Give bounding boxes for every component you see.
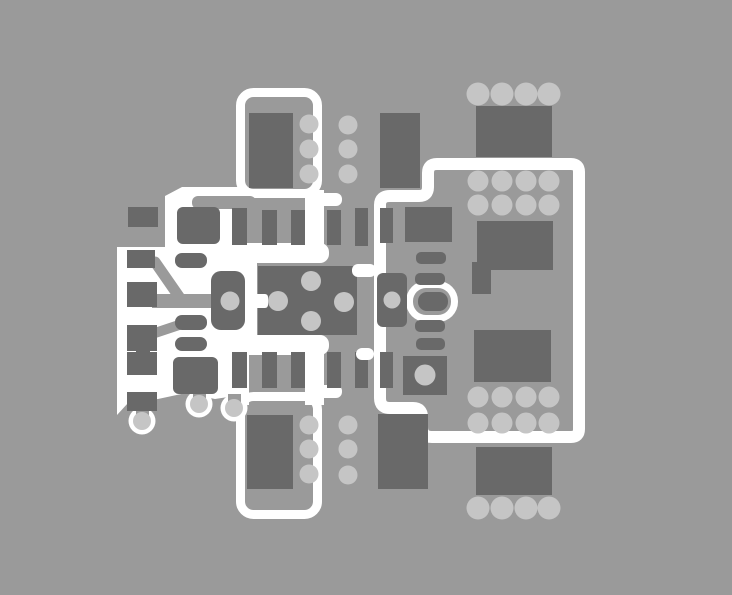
obround-pad-bar — [418, 292, 448, 311]
module-pad-topleft — [405, 207, 452, 242]
line-left-stub-lower — [356, 348, 374, 360]
via — [538, 497, 561, 520]
pad-block-bottom — [476, 447, 552, 495]
via — [492, 413, 513, 434]
via — [300, 140, 319, 159]
via — [300, 165, 319, 184]
teardrop-hole — [190, 395, 208, 413]
ic-pin — [291, 352, 305, 388]
via — [516, 195, 537, 216]
pin-bar — [415, 273, 445, 285]
thermal-via — [334, 292, 354, 312]
via — [339, 140, 358, 159]
via — [468, 195, 489, 216]
module-left-via — [384, 292, 401, 309]
ic-pin — [291, 210, 305, 245]
ic-pin — [380, 352, 393, 388]
via — [467, 83, 490, 106]
inner-pad — [175, 315, 207, 330]
via — [539, 195, 560, 216]
via — [339, 440, 358, 459]
pad-top-right — [380, 113, 420, 188]
line-left-stub-upper — [352, 264, 376, 277]
via — [492, 171, 513, 192]
ic-pin — [232, 208, 247, 245]
via — [468, 413, 489, 434]
via — [492, 387, 513, 408]
via — [539, 387, 560, 408]
thermal-via — [268, 291, 288, 311]
inner-pad-large — [177, 207, 220, 244]
inner-pad — [175, 337, 207, 351]
connector-pad-via — [221, 292, 240, 311]
thermal-via — [301, 271, 321, 291]
teardrop-hole — [133, 412, 151, 430]
via — [491, 83, 514, 106]
ic-pin — [232, 352, 247, 388]
via — [539, 413, 560, 434]
pad-below-module-left — [378, 414, 428, 489]
module-pad-lower — [474, 330, 551, 382]
outline-nub-top-right — [318, 193, 342, 206]
edge-pad — [127, 250, 155, 268]
board-background — [0, 0, 732, 595]
pad-block-top — [476, 106, 552, 157]
thermal-via — [301, 311, 321, 331]
pad-top-left — [128, 207, 158, 227]
ic-body-top-ring — [249, 113, 293, 188]
via — [300, 440, 319, 459]
ic-pin — [380, 208, 393, 243]
module-pad-upper — [477, 221, 553, 270]
via — [300, 115, 319, 134]
via — [339, 116, 358, 135]
ic-pin — [327, 352, 341, 388]
ic-pin — [262, 352, 277, 388]
via — [491, 497, 514, 520]
via — [539, 171, 560, 192]
via — [515, 83, 538, 106]
via — [339, 165, 358, 184]
pin-bar — [415, 320, 445, 332]
via — [516, 413, 537, 434]
via — [339, 466, 358, 485]
via — [516, 171, 537, 192]
edge-pad — [127, 352, 157, 375]
via — [339, 416, 358, 435]
via — [300, 465, 319, 484]
via — [516, 387, 537, 408]
via — [515, 497, 538, 520]
pin-bar — [416, 338, 445, 350]
via — [538, 83, 561, 106]
via — [467, 497, 490, 520]
edge-pad — [127, 392, 157, 411]
via — [468, 387, 489, 408]
thermal-left-stub — [246, 294, 268, 308]
ic-body-bottom-ring — [247, 415, 293, 489]
via — [300, 416, 319, 435]
via — [468, 171, 489, 192]
pcb-layout-canvas — [0, 0, 732, 595]
pcb-layout-svg — [0, 0, 732, 595]
inner-pad-large — [173, 357, 218, 394]
module-bottom-via — [415, 365, 436, 386]
teardrop-hole — [225, 399, 243, 417]
inner-pad — [175, 253, 207, 268]
pin-bar — [416, 252, 446, 264]
via — [492, 195, 513, 216]
ic-pin — [355, 208, 368, 246]
ic-pin — [327, 210, 341, 245]
edge-pad — [127, 282, 157, 307]
ic-pin — [262, 210, 277, 245]
